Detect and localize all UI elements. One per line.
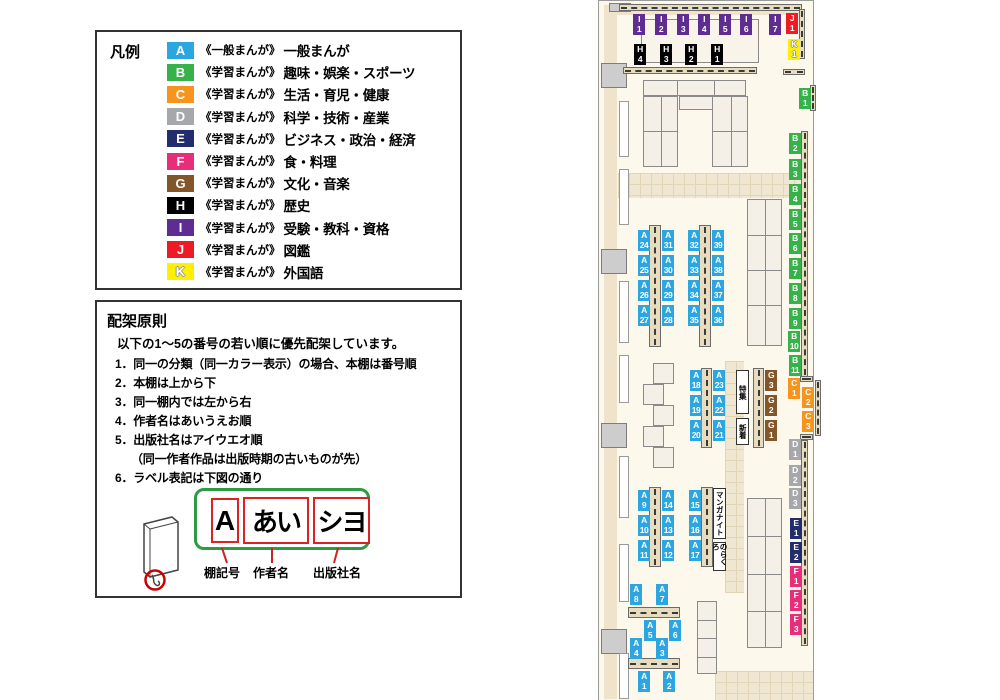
shelf-label-A34: A34 <box>688 280 700 301</box>
shelf-label-A13: A13 <box>662 515 674 536</box>
wall-shelf <box>619 355 629 403</box>
pillar <box>601 423 627 448</box>
shelf-label-I4: I4 <box>698 14 710 35</box>
bookshelf-strip <box>815 380 821 436</box>
bookshelf-strip <box>649 225 661 347</box>
shelf-label-A12: A12 <box>662 540 674 561</box>
bookshelf-strip <box>753 368 764 448</box>
shelf-label-B7: B7 <box>789 258 801 279</box>
shelf-label-A35: A35 <box>688 305 700 326</box>
pillar <box>601 249 627 274</box>
bookshelf-strip <box>801 131 808 377</box>
shelf-label-C3: C3 <box>802 411 814 432</box>
principles-title: 配架原則 <box>107 310 167 331</box>
legend-series: 《学習まんが》 <box>200 64 281 80</box>
reading-table <box>643 384 664 405</box>
principle-item-2: 2．本棚は上から下 <box>115 374 416 393</box>
shelf-label-A29: A29 <box>662 280 674 301</box>
legend-category: 趣味・娯楽・スポーツ <box>284 62 416 82</box>
legend-item-I: I《学習まんが》受験・教科・資格 <box>167 217 416 239</box>
legend-color-chip-E: E <box>167 130 194 147</box>
shelf-label-A19: A19 <box>690 395 702 416</box>
shelf-column <box>747 498 782 648</box>
shelf-label-I2: I2 <box>655 14 667 35</box>
table-block-bridge <box>679 96 713 110</box>
table-block-top <box>643 80 746 96</box>
shelf-label-B4: B4 <box>789 184 801 205</box>
legend-item-B: B《学習まんが》趣味・娯楽・スポーツ <box>167 61 416 83</box>
shelf-label-D3: D3 <box>789 488 801 509</box>
legend-series: 《学習まんが》 <box>200 197 281 213</box>
wall-shelf <box>619 169 629 225</box>
legend-color-chip-J: J <box>167 241 194 258</box>
legend-item-E: E《学習まんが》ビジネス・政治・経済 <box>167 128 416 150</box>
legend-item-F: F《学習まんが》食・料理 <box>167 150 416 172</box>
shelf-label-B2: B2 <box>789 133 801 154</box>
shelf-label-H1: H1 <box>711 44 723 65</box>
bookshelf-strip <box>699 225 711 347</box>
shelf-label-B5: B5 <box>789 209 801 230</box>
shelf-label-A24: A24 <box>638 230 650 251</box>
shelf-label-A30: A30 <box>662 255 674 276</box>
shelf-label-A39: A39 <box>712 230 724 251</box>
principle-item-6: （同一作者作品は出版時期の古いものが先） <box>115 450 416 469</box>
legend-color-chip-C: C <box>167 86 194 103</box>
legend-item-C: C《学習まんが》生活・育児・健康 <box>167 83 416 105</box>
shelf-label-A7: A7 <box>656 584 668 605</box>
legend-category: 生活・育児・健康 <box>284 84 390 104</box>
principle-item-5: 5．出版社名はアイウエオ順 <box>115 431 416 450</box>
bookshelf-strip <box>783 69 805 75</box>
publisher-box: シヨ <box>313 497 370 544</box>
area-label-マンガナイト: マンガナイト <box>713 488 726 539</box>
legend-color-chip-A: A <box>167 42 194 59</box>
shelf-label-A21: A21 <box>713 420 725 441</box>
principle-item-3: 3．同一棚内では左から右 <box>115 393 416 412</box>
bookshelf-strip <box>800 376 813 382</box>
shelf-label-A3: A3 <box>656 638 668 659</box>
shelf-label-B11: B11 <box>789 355 801 376</box>
shelf-label-F3: F3 <box>790 614 802 635</box>
bookshelf-strip <box>649 487 661 567</box>
legend-item-G: G《学習まんが》文化・音楽 <box>167 172 416 194</box>
legend-series: 《学習まんが》 <box>200 153 281 169</box>
shelf-label-E2: E2 <box>790 542 802 563</box>
reading-table <box>653 405 674 426</box>
legend-series: 《学習まんが》 <box>200 86 281 102</box>
legend-series: 《学習まんが》 <box>200 220 281 236</box>
legend-category: 歴史 <box>284 195 310 215</box>
shelf-label-A26: A26 <box>638 280 650 301</box>
shelf-label-A10: A10 <box>638 515 650 536</box>
legend-category: 図鑑 <box>284 240 310 260</box>
shelf-label-H2: H2 <box>685 44 697 65</box>
legend-color-chip-F: F <box>167 153 194 170</box>
shelf-label-A33: A33 <box>688 255 700 276</box>
shelf-label-A18: A18 <box>690 370 702 391</box>
wall-shelf <box>619 101 629 157</box>
shelf-label-I1: I1 <box>633 14 645 35</box>
shelf-label-A15: A15 <box>689 490 701 511</box>
diagram-label-author: 作者名 <box>253 564 289 581</box>
legend-item-H: H《学習まんが》歴史 <box>167 194 416 216</box>
legend-item-A: A《一般まんが》一般まんが <box>167 39 416 61</box>
shelf-label-G3: G3 <box>765 370 777 391</box>
wall-shelf <box>619 281 629 343</box>
table-block-right <box>712 96 748 167</box>
principle-item-1: 1．同一の分類（同一カラー表示）の場合、本棚は番号順 <box>115 355 416 374</box>
shelf-label-H4: H4 <box>634 44 646 65</box>
legend-color-chip-K: K <box>167 263 194 280</box>
aisle-left <box>604 5 617 699</box>
bookshelf-strip <box>801 440 808 646</box>
shelf-label-G1: G1 <box>765 420 777 441</box>
legend-color-chip-H: H <box>167 197 194 214</box>
pillar <box>601 629 627 654</box>
legend-color-chip-B: B <box>167 64 194 81</box>
diagram-label-publisher: 出版社名 <box>313 564 361 581</box>
shelf-label-B8: B8 <box>789 283 801 304</box>
legend-title: 凡例 <box>110 41 140 62</box>
wall-shelf <box>619 456 629 518</box>
bookshelf-strip <box>628 658 680 669</box>
shelf-label-K1: K1 <box>788 39 800 60</box>
shelf-label-A1: A1 <box>638 671 650 692</box>
shelf-label-A8: A8 <box>630 584 642 605</box>
legend-category: 文化・音楽 <box>284 173 350 193</box>
shelf-label-A31: A31 <box>662 230 674 251</box>
legend-color-chip-I: I <box>167 219 194 236</box>
shelf-label-A28: A28 <box>662 305 674 326</box>
reading-table <box>653 447 674 468</box>
legend-category: 科学・技術・産業 <box>284 107 390 127</box>
shelf-label-C2: C2 <box>802 387 814 408</box>
diagram-label-shelf: 棚記号 <box>204 564 240 581</box>
manga-floor-map-poster: { "colors": { "A": "#2CA6E0", "B": "#35B… <box>0 0 1000 700</box>
principle-item-4: 4．作者名はあいうえお順 <box>115 412 416 431</box>
shelf-label-A16: A16 <box>689 515 701 536</box>
table-block-left <box>643 96 678 167</box>
shelf-label-A14: A14 <box>662 490 674 511</box>
shelf-label-J1: J1 <box>786 13 798 34</box>
shelf-label-B6: B6 <box>789 233 801 254</box>
shelf-label-I6: I6 <box>740 14 752 35</box>
shelf-label-A9: A9 <box>638 490 650 511</box>
shelf-column-small <box>697 601 717 674</box>
shelf-label-A5: A5 <box>644 620 656 641</box>
bookshelf-strip <box>619 4 802 11</box>
bookshelf-strip <box>623 67 757 74</box>
legend-category: ビジネス・政治・経済 <box>284 129 416 149</box>
shelf-label-B10: B10 <box>788 331 800 352</box>
shelf-label-A27: A27 <box>638 305 650 326</box>
shelf-column <box>747 199 782 346</box>
legend-category: 受験・教科・資格 <box>284 218 390 238</box>
shelf-label-D1: D1 <box>789 439 801 460</box>
legend-category: 一般まんが <box>284 40 350 60</box>
legend-category: 外国語 <box>284 262 324 282</box>
shelf-code-box: A <box>211 498 239 543</box>
shelf-label-C1: C1 <box>788 378 800 399</box>
shelf-label-A32: A32 <box>688 230 700 251</box>
legend-series: 《学習まんが》 <box>200 264 281 280</box>
principles-panel: 配架原則 以下の1～5の番号の若い順に優先配架しています。 1．同一の分類（同一… <box>95 300 462 598</box>
legend-series: 《学習まんが》 <box>200 175 281 191</box>
legend-rows: A《一般まんが》一般まんがB《学習まんが》趣味・娯楽・スポーツC《学習まんが》生… <box>167 39 416 283</box>
shelf-label-A37: A37 <box>712 280 724 301</box>
shelf-label-A4: A4 <box>630 638 642 659</box>
legend-series: 《一般まんが》 <box>200 42 281 58</box>
legend-series: 《学習まんが》 <box>200 109 281 125</box>
area-label-のらくろ: のらくろ <box>713 542 726 571</box>
legend-category: 食・料理 <box>284 151 337 171</box>
shelf-label-A22: A22 <box>713 395 725 416</box>
principle-item-7: 6．ラベル表記は下図の通り <box>115 469 416 488</box>
legend-color-chip-D: D <box>167 108 194 125</box>
shelf-label-E1: E1 <box>790 518 802 539</box>
shelf-label-I5: I5 <box>719 14 731 35</box>
shelf-label-B3: B3 <box>789 159 801 180</box>
shelf-label-A17: A17 <box>689 540 701 561</box>
bookshelf-strip <box>628 607 680 618</box>
shelf-label-A36: A36 <box>712 305 724 326</box>
area-label-新着: 新着 <box>736 418 749 445</box>
legend-item-D: D《学習まんが》科学・技術・産業 <box>167 106 416 128</box>
shelf-label-A11: A11 <box>638 540 650 561</box>
shelf-label-A23: A23 <box>713 370 725 391</box>
shelf-label-H3: H3 <box>660 44 672 65</box>
principles-list: 1．同一の分類（同一カラー表示）の場合、本棚は番号順2．本棚は上から下3．同一棚… <box>115 355 416 488</box>
shelf-label-I7: I7 <box>769 14 781 35</box>
shelf-label-B9: B9 <box>789 308 801 329</box>
shelf-label-A6: A6 <box>669 620 681 641</box>
principles-intro: 以下の1～5の番号の若い順に優先配架しています。 <box>117 333 404 352</box>
shelf-label-B1: B1 <box>799 88 811 109</box>
label-format-diagram: A あい シヨ <box>194 488 370 550</box>
legend-series: 《学習まんが》 <box>200 131 281 147</box>
floor-map: I1I2I3I4I5I6I7J1K1H4H3H2H1B1B2B3B4B5B6B7… <box>598 0 814 700</box>
shelf-label-F2: F2 <box>790 590 802 611</box>
aisle-bottom-right <box>715 671 813 700</box>
shelf-label-I3: I3 <box>677 14 689 35</box>
author-box: あい <box>243 497 309 544</box>
shelf-label-A2: A2 <box>663 671 675 692</box>
legend-series: 《学習まんが》 <box>200 242 281 258</box>
shelf-label-A20: A20 <box>690 420 702 441</box>
shelf-label-A38: A38 <box>712 255 724 276</box>
area-label-特集: 特集 <box>736 370 749 414</box>
wall-shelf <box>619 544 629 602</box>
legend-item-K: K《学習まんが》外国語 <box>167 261 416 283</box>
aisle-cross-upper <box>618 173 801 198</box>
bookshelf-strip <box>701 368 712 448</box>
reading-table <box>643 426 664 447</box>
legend-item-J: J《学習まんが》図鑑 <box>167 239 416 261</box>
shelf-label-D2: D2 <box>789 465 801 486</box>
reading-table <box>653 363 674 384</box>
shelf-label-G2: G2 <box>765 395 777 416</box>
shelf-label-A25: A25 <box>638 255 650 276</box>
shelf-label-F1: F1 <box>790 566 802 587</box>
legend-panel: 凡例 A《一般まんが》一般まんがB《学習まんが》趣味・娯楽・スポーツC《学習まん… <box>95 30 462 290</box>
legend-color-chip-G: G <box>167 175 194 192</box>
